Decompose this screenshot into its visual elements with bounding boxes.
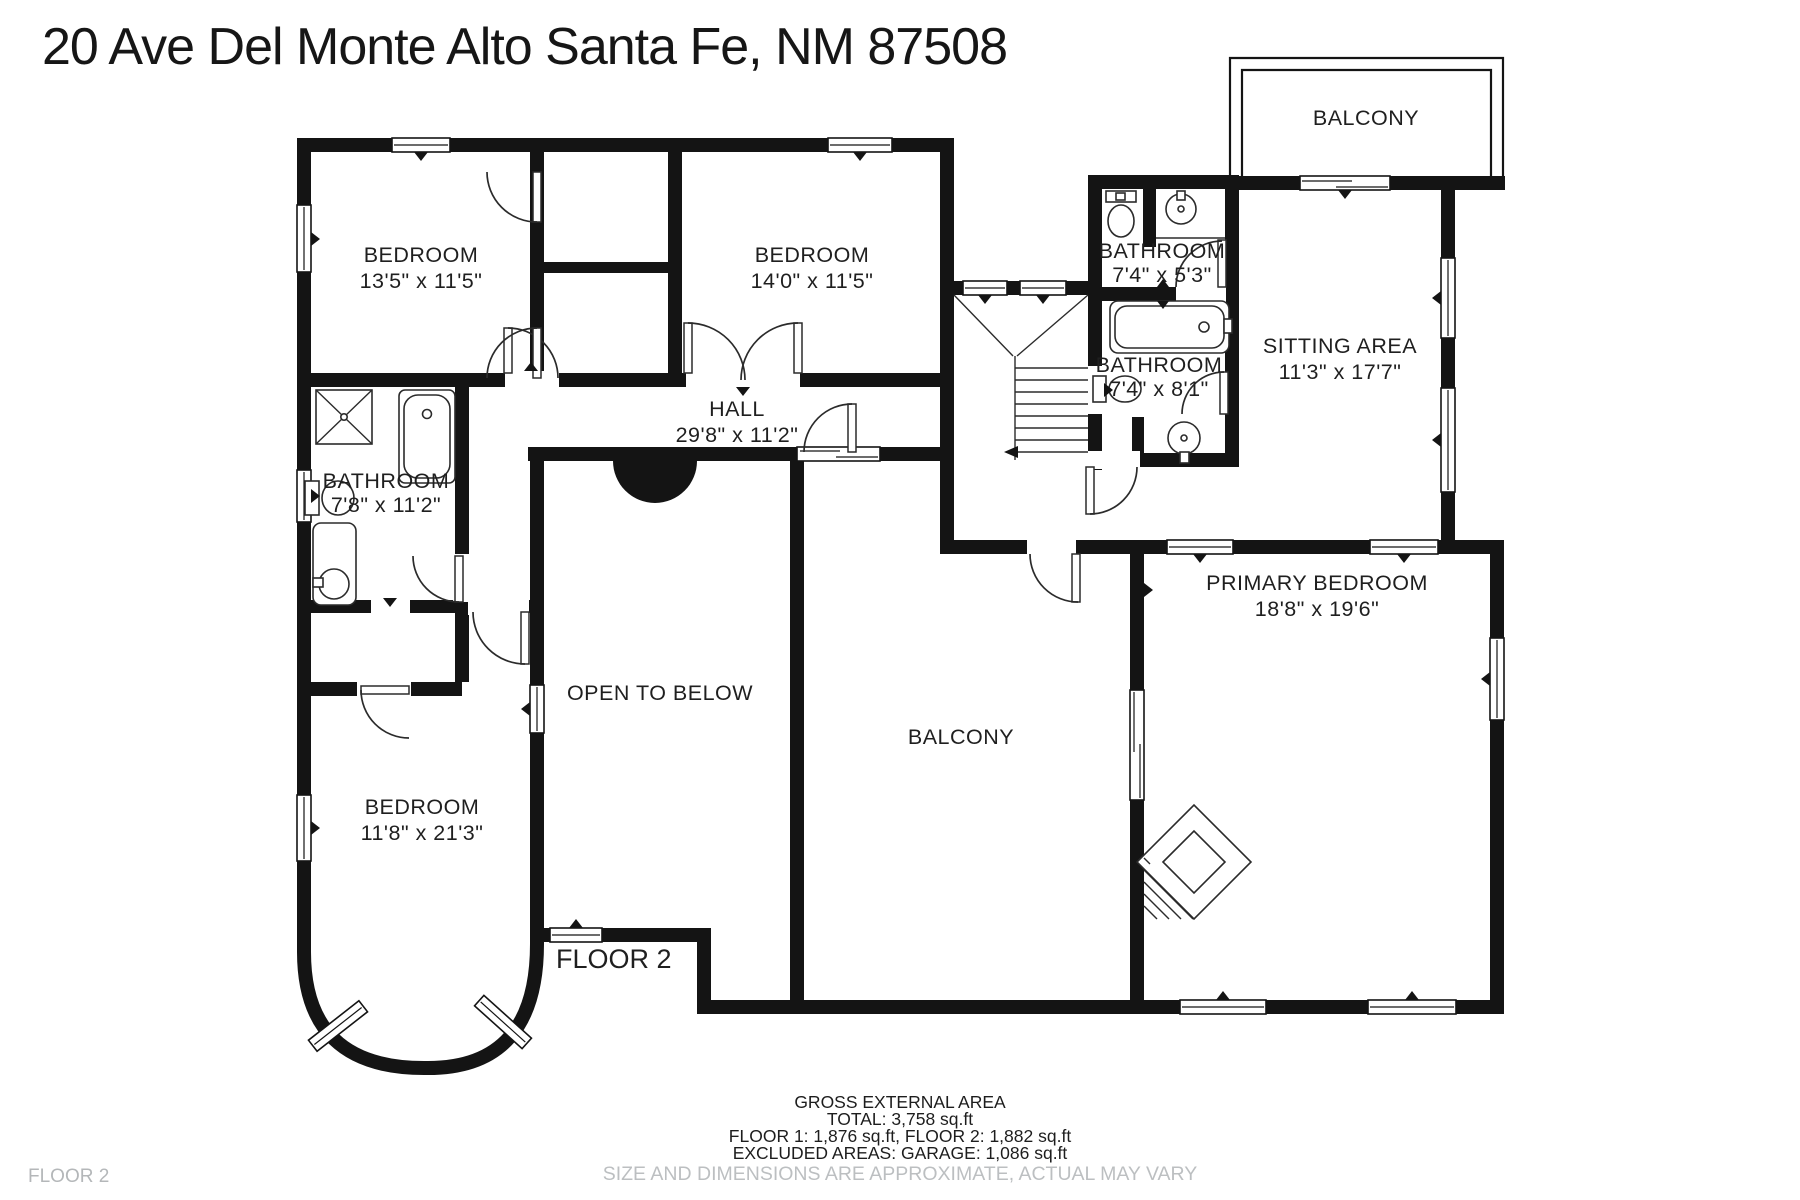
plan-floor-label: FLOOR 2 bbox=[556, 944, 672, 974]
page-title: 20 Ave Del Monte Alto Santa Fe, NM 87508 bbox=[42, 18, 1007, 76]
toilet-top-fixture bbox=[1106, 191, 1136, 237]
room-label-bathroom-left: BATHROOM bbox=[323, 469, 450, 493]
room-label-bathroom-mid: BATHROOM bbox=[1096, 353, 1223, 377]
room-label-hall: HALL bbox=[709, 397, 765, 421]
fireplace bbox=[1137, 805, 1251, 919]
sink-top-fixture bbox=[1156, 191, 1225, 238]
room-dims-sitting-area: 11'3" x 17'7" bbox=[1279, 360, 1402, 384]
room-labels: BEDROOM 13'5" x 11'5" BEDROOM 14'0" x 11… bbox=[323, 106, 1428, 845]
floor-plan-page: 20 Ave Del Monte Alto Santa Fe, NM 87508 bbox=[0, 0, 1800, 1200]
footer-disclaimer: SIZE AND DIMENSIONS ARE APPROXIMATE, ACT… bbox=[603, 1163, 1198, 1185]
room-dims-bedroom-bottom-left: 11'8" x 21'3" bbox=[361, 821, 484, 845]
room-label-bedroom-top-mid: BEDROOM bbox=[755, 243, 870, 267]
footer-excluded: EXCLUDED AREAS: GARAGE: 1,086 sq.ft bbox=[733, 1143, 1068, 1163]
room-label-balcony-mid: BALCONY bbox=[908, 725, 1014, 749]
room-dims-bedroom-top-mid: 14'0" x 11'5" bbox=[751, 269, 874, 293]
room-label-sitting-area: SITTING AREA bbox=[1263, 334, 1417, 358]
stairs-direction-arrow bbox=[1004, 446, 1018, 458]
shower-fixture bbox=[316, 390, 372, 444]
room-label-bedroom-top-left: BEDROOM bbox=[364, 243, 479, 267]
room-label-balcony-top: BALCONY bbox=[1313, 106, 1419, 130]
floor-plan-canvas: 20 Ave Del Monte Alto Santa Fe, NM 87508 bbox=[0, 0, 1800, 1200]
bathtub-mid-fixture bbox=[1110, 301, 1232, 353]
room-dims-bathroom-top: 7'4" x 5'3" bbox=[1112, 263, 1212, 287]
staircase bbox=[954, 295, 1088, 460]
sink-left-fixture bbox=[313, 523, 356, 605]
room-dims-hall: 29'8" x 11'2" bbox=[676, 423, 799, 447]
room-label-bedroom-bottom-left: BEDROOM bbox=[365, 795, 480, 819]
room-dims-bathroom-left: 7'8" x 11'2" bbox=[331, 493, 441, 517]
room-label-open-to-below: OPEN TO BELOW bbox=[567, 681, 753, 705]
room-dims-bedroom-top-left: 13'5" x 11'5" bbox=[360, 269, 483, 293]
footer-area-summary: GROSS EXTERNAL AREA TOTAL: 3,758 sq.ft F… bbox=[603, 1092, 1198, 1185]
room-dims-primary-bedroom: 18'8" x 19'6" bbox=[1255, 597, 1379, 621]
corner-floor-label: FLOOR 2 bbox=[28, 1166, 109, 1187]
room-label-primary-bedroom: PRIMARY BEDROOM bbox=[1206, 571, 1428, 595]
room-dims-bathroom-mid: 7'4" x 8'1" bbox=[1109, 377, 1209, 401]
room-label-bathroom-top: BATHROOM bbox=[1099, 239, 1226, 263]
